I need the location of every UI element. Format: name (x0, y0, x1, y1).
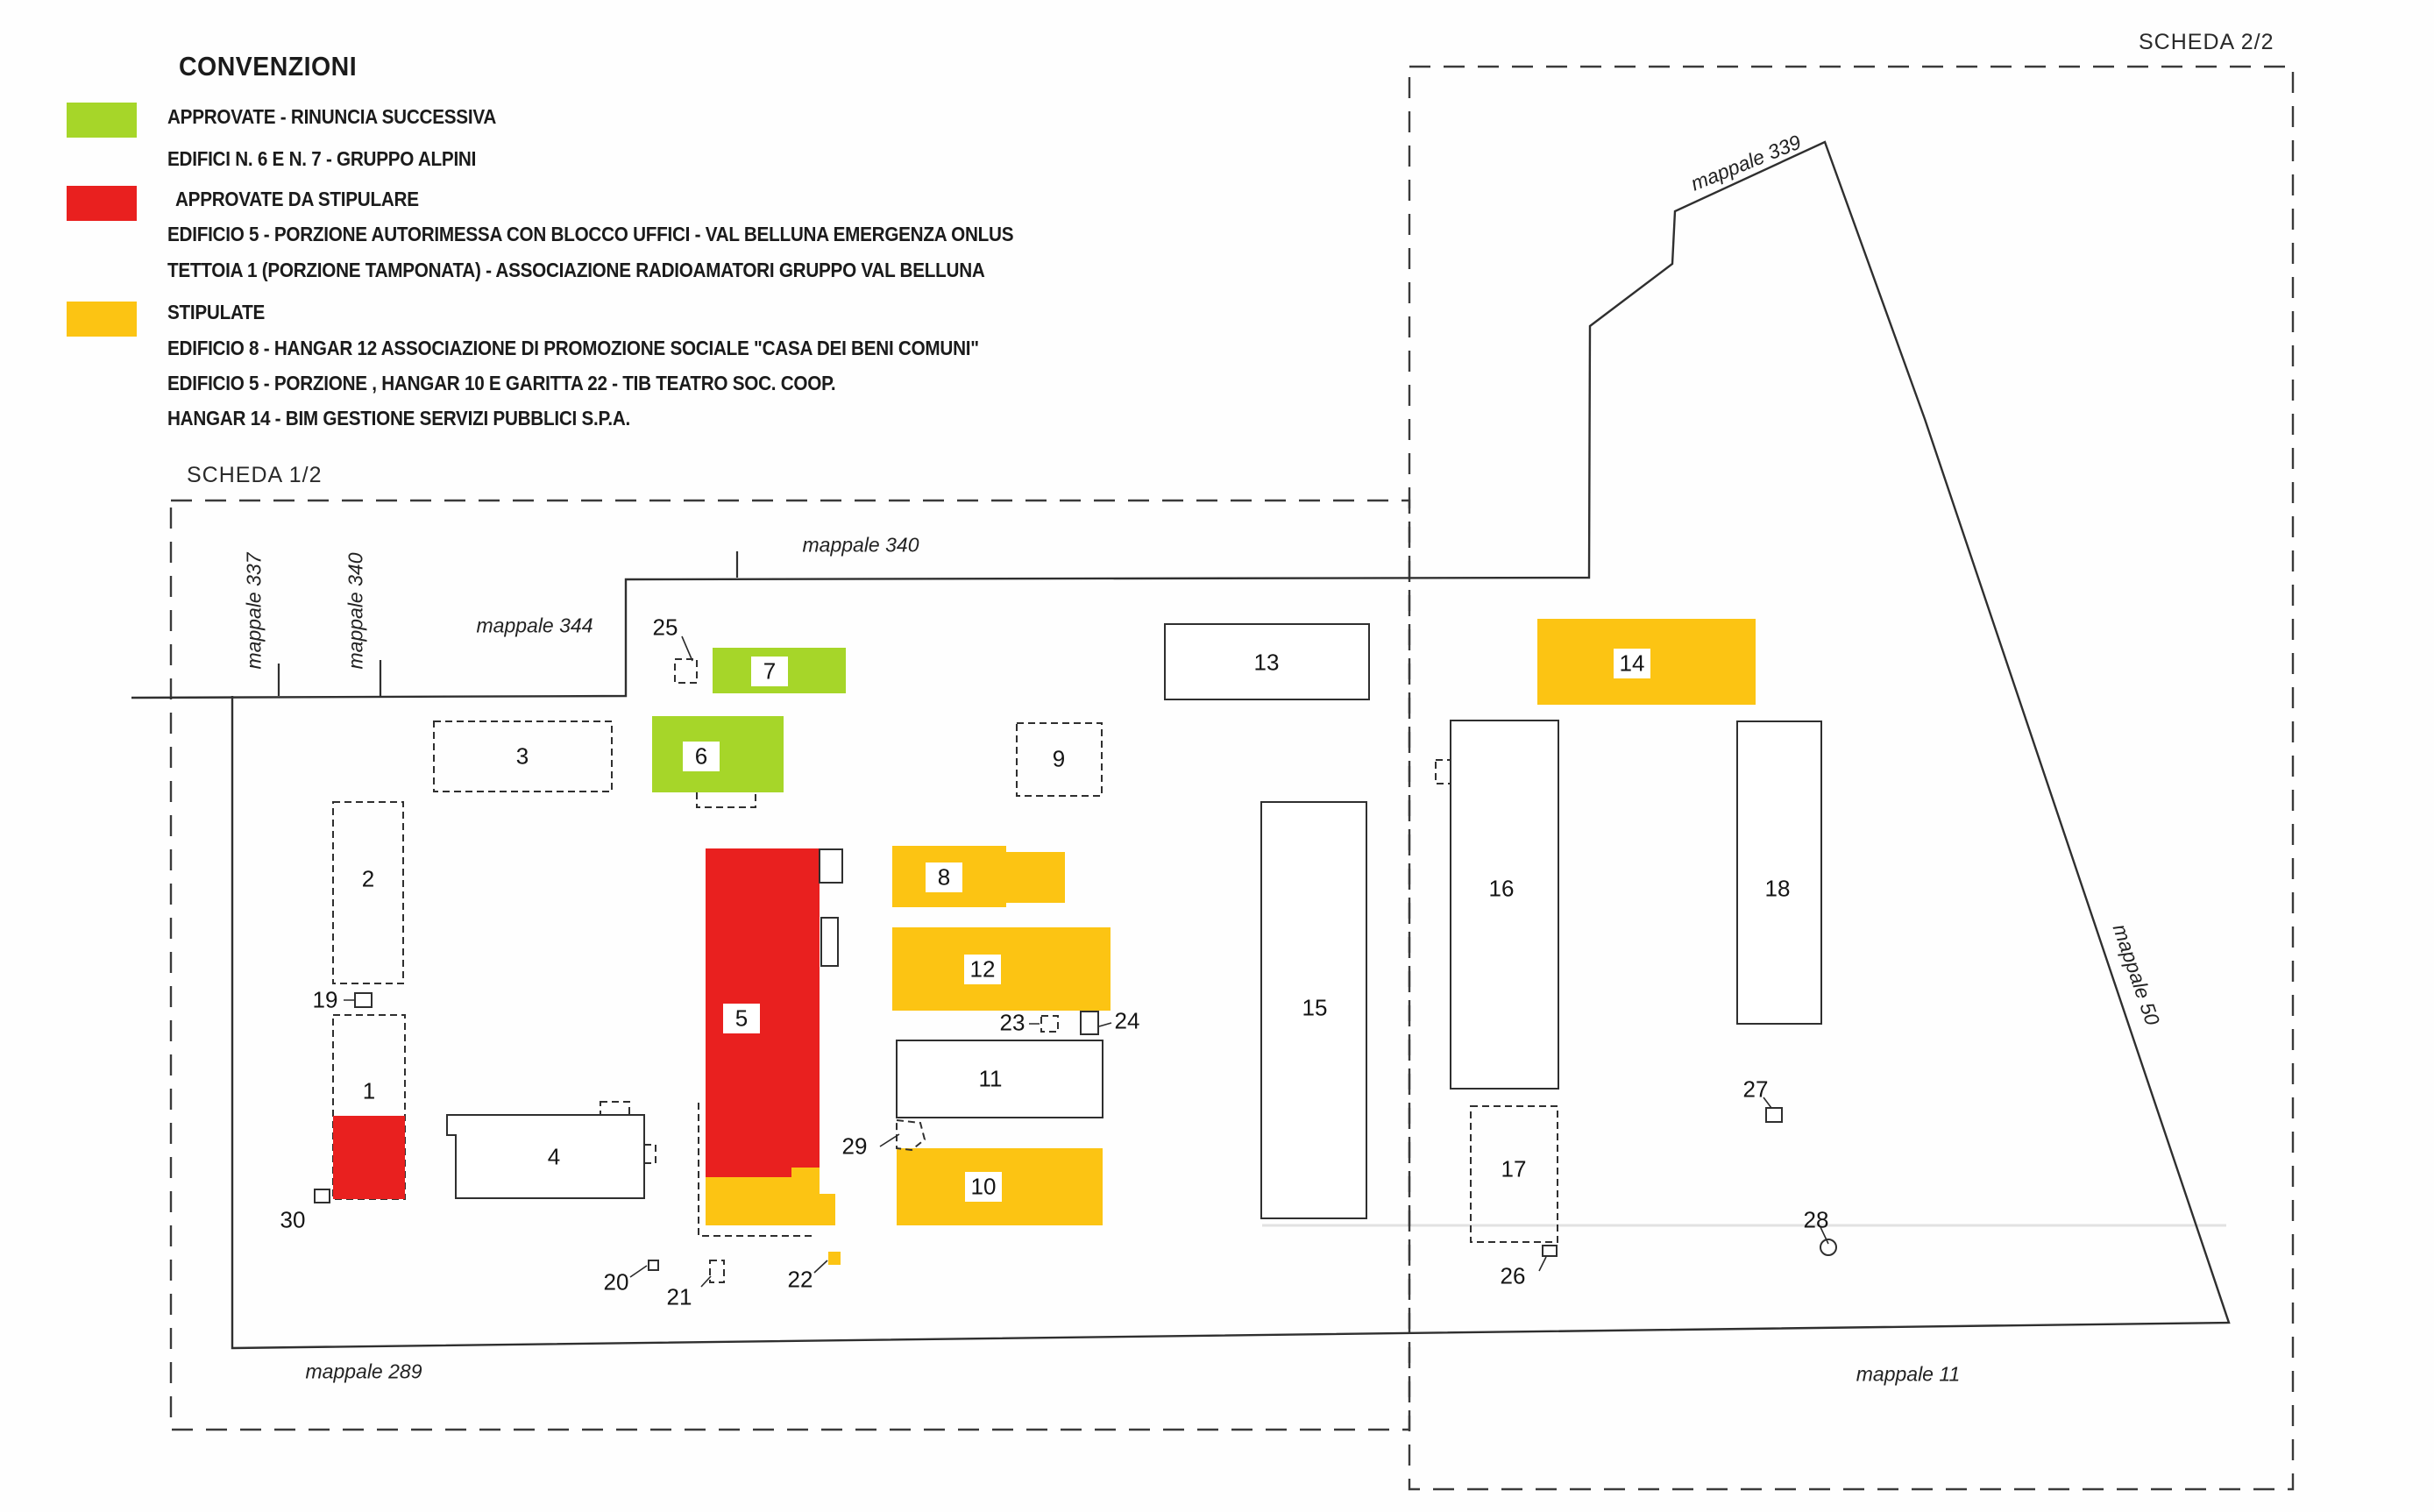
legend-heading-stipulate: STIPULATE (167, 301, 265, 324)
mappale-344-label: mappale 344 (477, 614, 593, 638)
marker-label-20: 20 (604, 1269, 629, 1296)
marker-label-23: 23 (1000, 1010, 1025, 1037)
marker-29 (897, 1120, 925, 1150)
legend-swatch-yellow (67, 302, 137, 337)
building-label-17: 17 (1501, 1156, 1527, 1183)
scheda-2-2-label: SCHEDA 2/2 (2139, 30, 2274, 55)
building-label-11: 11 (979, 1066, 1003, 1093)
legend-heading-approvate-rinuncia: APPROVATE - RINUNCIA SUCCESSIVA (167, 105, 496, 129)
marker-label-22: 22 (788, 1267, 813, 1294)
legend-line-edificio-5-autorimessa: EDIFICIO 5 - PORZIONE AUTORIMESSA CON BL… (167, 223, 1013, 246)
marker-24 (1081, 1012, 1098, 1034)
building-16-part-1 (1436, 760, 1451, 784)
mappale-340-top-label: mappale 340 (803, 534, 919, 557)
marker-21 (710, 1260, 724, 1282)
building-label-15: 15 (1302, 995, 1328, 1022)
building-label-5: 5 (735, 1005, 748, 1033)
building-16 (1451, 721, 1558, 1089)
marker-label-28: 28 (1804, 1207, 1829, 1234)
marker-23 (1041, 1016, 1058, 1032)
marker-label-27: 27 (1743, 1076, 1769, 1104)
mappale-11-label: mappale 11 (1856, 1363, 1961, 1387)
legend-line-edificio-8-hangar-12: EDIFICIO 8 - HANGAR 12 ASSOCIAZIONE DI P… (167, 337, 979, 360)
marker-19 (355, 993, 372, 1007)
marker-22 (828, 1252, 841, 1265)
building-4-part-1 (600, 1102, 629, 1115)
legend-swatch-green (67, 103, 137, 138)
marker-27 (1766, 1108, 1782, 1122)
building-label-12: 12 (970, 956, 996, 983)
marker-label-24: 24 (1115, 1008, 1140, 1035)
marker-label-25: 25 (653, 614, 678, 642)
building-label-6: 6 (695, 743, 707, 770)
building-label-8: 8 (938, 864, 950, 891)
site-plan-page: CONVENZIONI APPROVATE - RINUNCIA SUCCESS… (0, 0, 2434, 1512)
legend-line-hangar-14-bim: HANGAR 14 - BIM GESTIONE SERVIZI PUBBLIC… (167, 407, 630, 430)
building-4 (447, 1115, 644, 1198)
building-1-part-1 (333, 1116, 405, 1199)
mappale-337-label: mappale 337 (243, 553, 266, 670)
marker-label-30: 30 (280, 1207, 306, 1234)
building-label-3: 3 (516, 743, 529, 770)
marker-label-29: 29 (842, 1133, 868, 1161)
building-label-2: 2 (362, 866, 374, 893)
building-8 (892, 846, 1065, 907)
building-label-14: 14 (1620, 650, 1645, 678)
legend-swatch-red (67, 186, 137, 221)
building-label-18: 18 (1765, 876, 1791, 903)
building-label-13: 13 (1254, 650, 1280, 677)
legend-line-edifici-6-7: EDIFICI N. 6 E N. 7 - GRUPPO ALPINI (167, 147, 476, 171)
building-label-16: 16 (1489, 876, 1515, 903)
mappale-340-left-label: mappale 340 (344, 553, 368, 670)
marker-25 (675, 659, 697, 683)
parcel-boundary (131, 142, 2229, 1348)
building-label-1: 1 (363, 1078, 375, 1105)
building-label-10: 10 (971, 1174, 997, 1201)
building-18 (1737, 721, 1821, 1024)
building-label-4: 4 (548, 1144, 560, 1171)
building-6-part-1 (697, 792, 756, 807)
legend-line-tettoia-1: TETTOIA 1 (PORZIONE TAMPONATA) - ASSOCIA… (167, 259, 985, 282)
marker-20 (649, 1260, 658, 1270)
building-label-7: 7 (763, 658, 776, 685)
scheda-1-2-label: SCHEDA 1/2 (187, 463, 323, 488)
building-label-9: 9 (1053, 746, 1065, 773)
building-4-part-2 (644, 1145, 656, 1163)
marker-26 (1543, 1246, 1557, 1256)
marker-label-19: 19 (313, 987, 338, 1014)
building-5-part-2 (820, 849, 842, 883)
legend-title: CONVENZIONI (179, 51, 357, 82)
marker-28 (1820, 1239, 1836, 1255)
building-12 (892, 927, 1111, 1011)
marker-label-26: 26 (1501, 1263, 1526, 1290)
marker-30 (315, 1189, 330, 1203)
legend-heading-approvate-da-stipulare: APPROVATE DA STIPULARE (175, 188, 419, 211)
building-5-part-3 (821, 918, 838, 966)
legend-line-edificio-5-hangar-10: EDIFICIO 5 - PORZIONE , HANGAR 10 E GARI… (167, 372, 835, 395)
building-2 (333, 802, 403, 983)
mappale-289-label: mappale 289 (306, 1360, 422, 1384)
marker-label-21: 21 (667, 1284, 692, 1311)
